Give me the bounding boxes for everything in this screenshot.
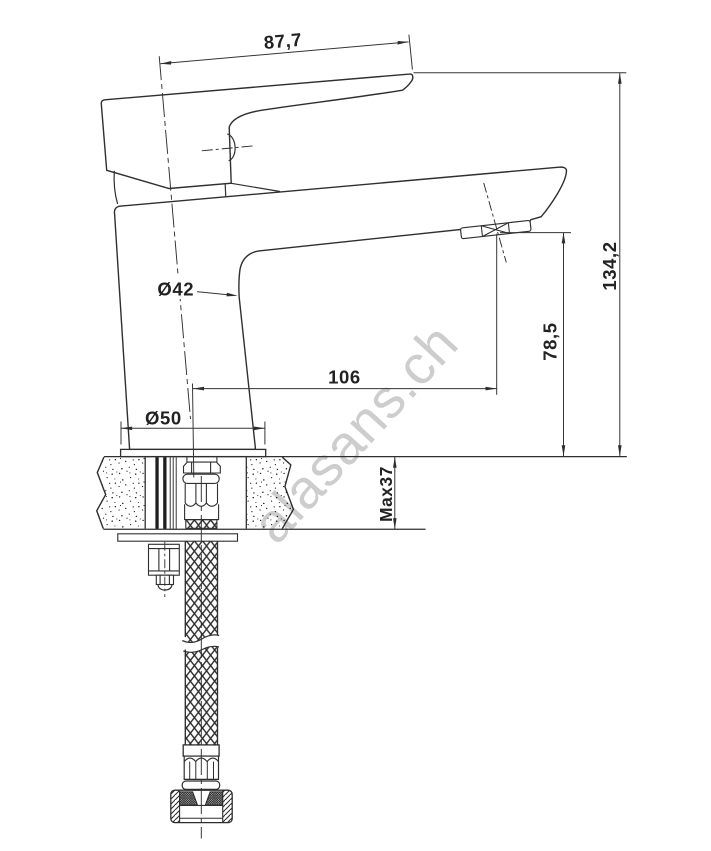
svg-text:78,5: 78,5 xyxy=(540,322,561,360)
svg-text:134,2: 134,2 xyxy=(599,241,620,290)
svg-text:Ø50: Ø50 xyxy=(145,407,182,428)
svg-text:Max37: Max37 xyxy=(376,466,396,522)
svg-text:106: 106 xyxy=(328,367,361,388)
svg-text:87,7: 87,7 xyxy=(263,29,303,53)
svg-text:Ø42: Ø42 xyxy=(157,279,194,300)
